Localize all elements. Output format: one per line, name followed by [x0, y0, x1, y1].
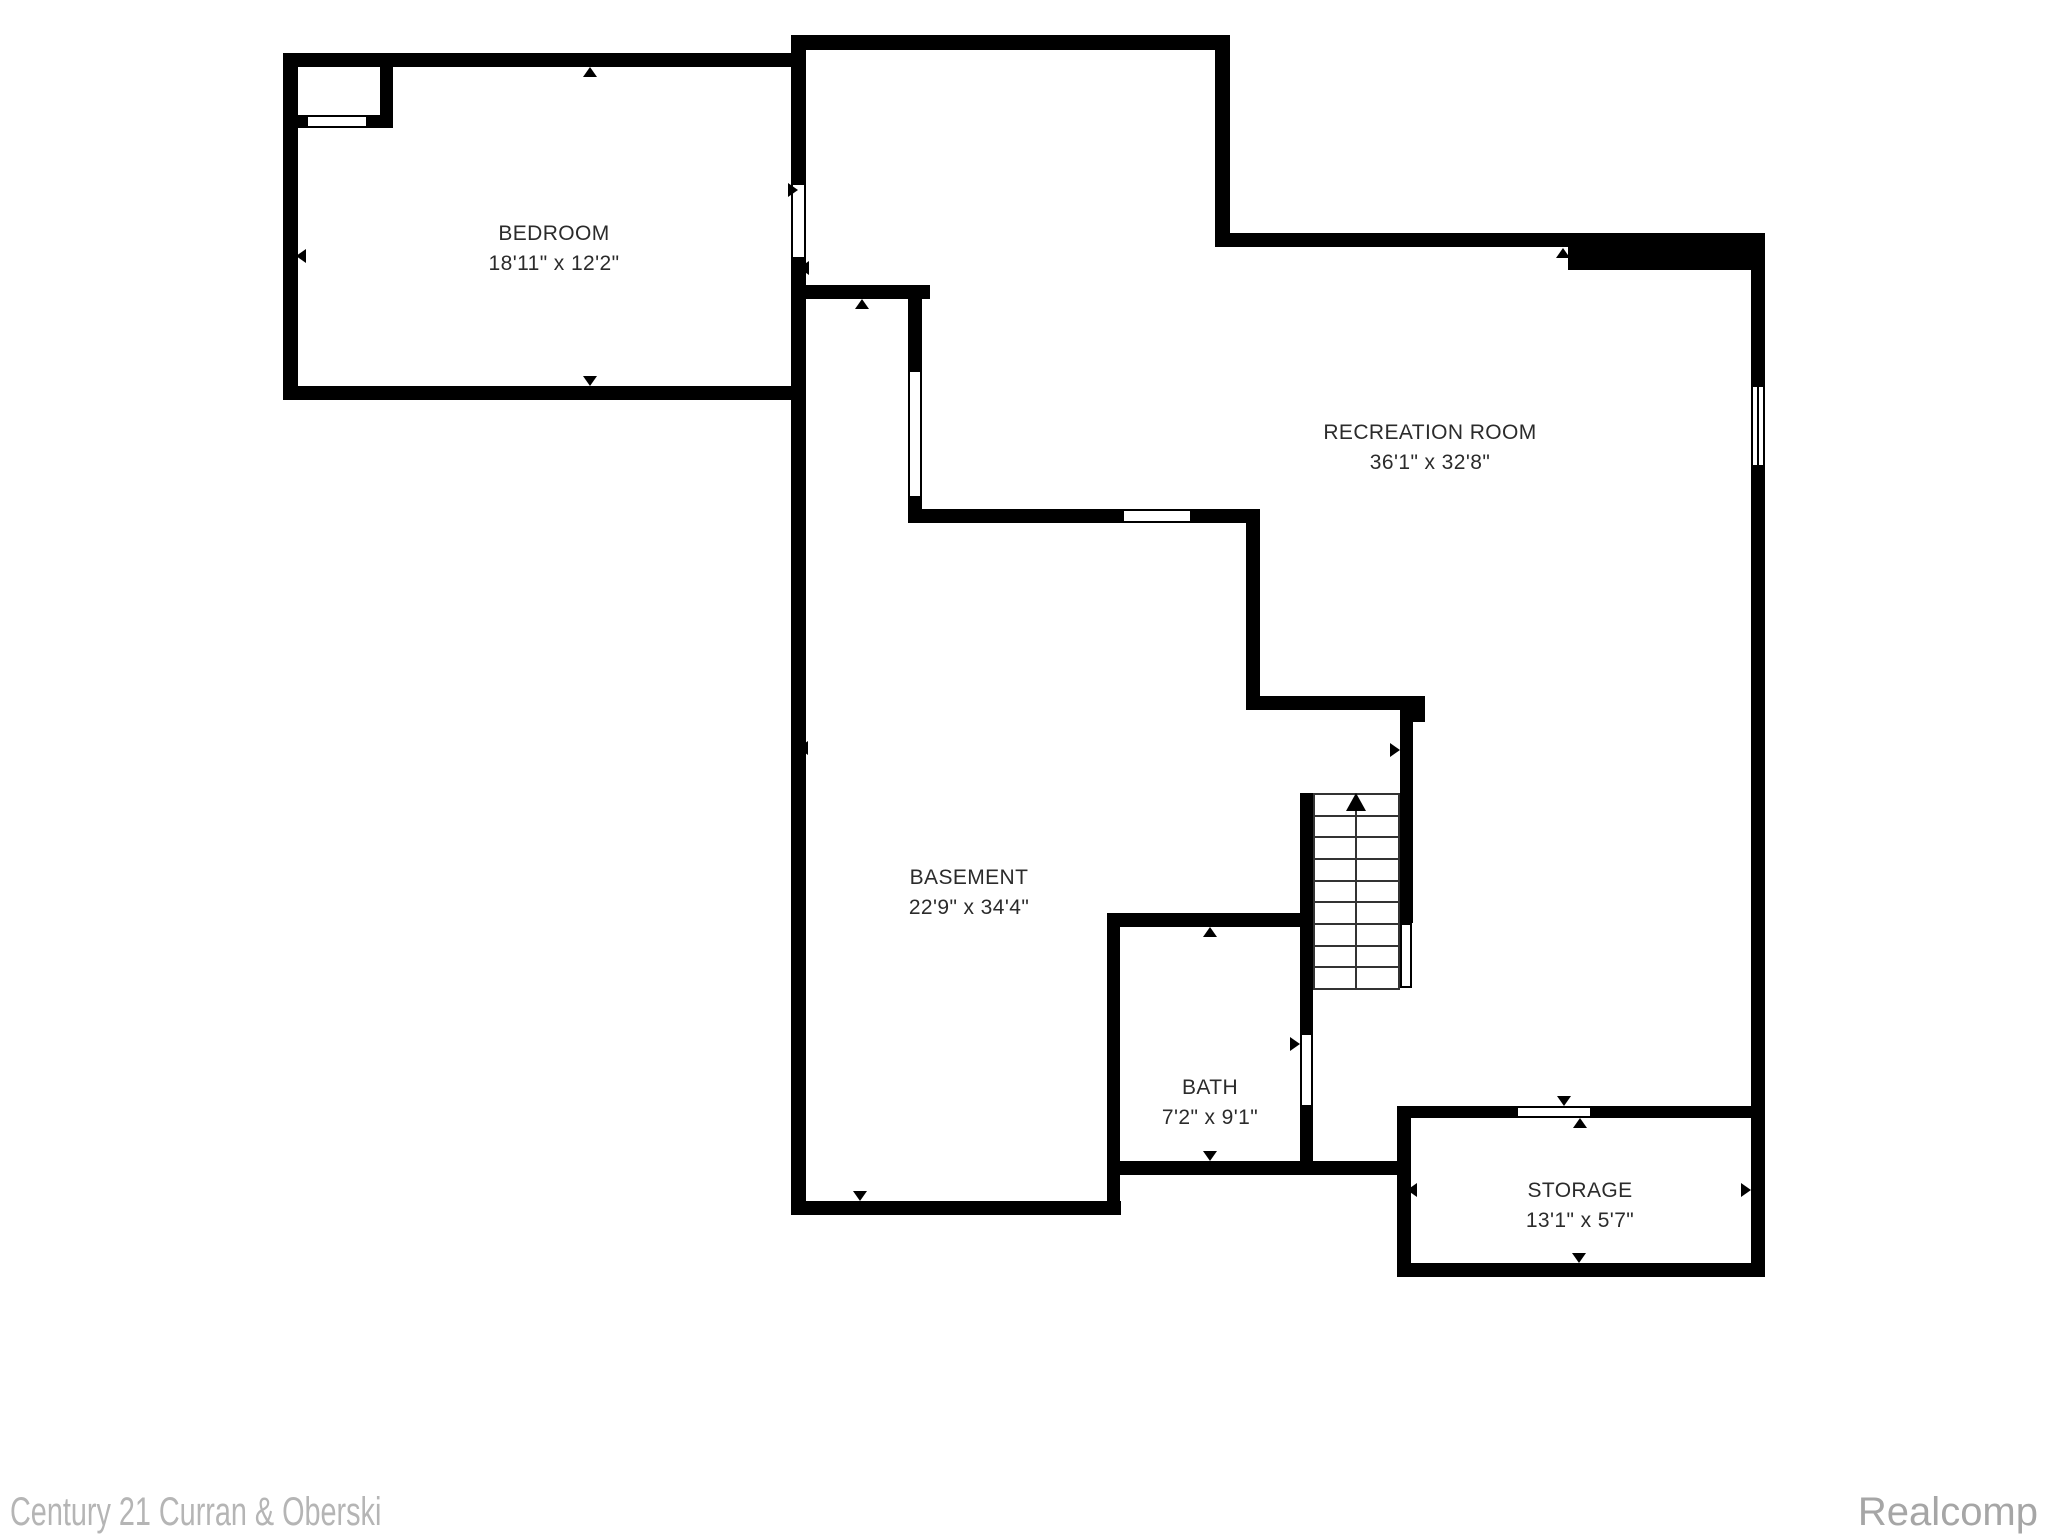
wall: [1107, 1161, 1397, 1175]
floorplan-canvas: BEDROOM18'11" x 12'2"RECREATION ROOM36'1…: [0, 0, 2048, 1536]
stair-railing: [1400, 923, 1412, 988]
room-label-bedroom: BEDROOM18'11" x 12'2": [489, 219, 620, 279]
stair-edge: [1313, 793, 1315, 988]
stair-up-arrow-icon: [1346, 793, 1366, 811]
room-label-recreation-room: RECREATION ROOM36'1" x 32'8": [1323, 418, 1536, 478]
wall: [1246, 696, 1410, 710]
wall: [791, 400, 806, 1215]
room-dimensions-bath: 7'2" x 9'1": [1162, 1103, 1258, 1133]
recreation-window-small: [1122, 509, 1192, 523]
dimension-marker-icon: [1203, 927, 1217, 937]
window-glass-line: [1757, 387, 1759, 465]
room-label-basement: BASEMENT22'9" x 34'4": [909, 863, 1029, 923]
dimension-marker-icon: [1110, 1036, 1120, 1050]
wall: [806, 285, 930, 299]
storage-door-opening: [1518, 1106, 1590, 1118]
dimension-marker-icon: [798, 741, 808, 755]
room-dimensions-storage: 13'1" x 5'7": [1526, 1206, 1634, 1236]
dimension-marker-icon: [583, 67, 597, 77]
wall: [1397, 1106, 1518, 1118]
room-name-recreation-room: RECREATION ROOM: [1323, 418, 1536, 448]
wall: [908, 509, 1122, 523]
dimension-marker-icon: [1290, 1037, 1300, 1051]
dimension-marker-icon: [788, 183, 798, 197]
room-name-bedroom: BEDROOM: [489, 219, 620, 249]
dimension-marker-icon: [1741, 1183, 1751, 1197]
wall: [1400, 722, 1413, 923]
wall: [791, 257, 806, 400]
dimension-marker-icon: [1203, 1151, 1217, 1161]
room-name-basement: BASEMENT: [909, 863, 1029, 893]
dimension-marker-icon: [853, 1191, 867, 1201]
wall: [908, 299, 922, 370]
stair-edge: [1398, 793, 1400, 988]
room-dimensions-recreation-room: 36'1" x 32'8": [1323, 448, 1536, 478]
closet-door-opening: [306, 115, 368, 128]
wall: [791, 35, 1230, 50]
wall: [283, 53, 806, 67]
dimension-marker-icon: [1572, 1253, 1586, 1263]
wall: [1568, 233, 1765, 270]
room-name-storage: STORAGE: [1526, 1176, 1634, 1206]
dimension-marker-icon: [1407, 1183, 1417, 1197]
stair-center-line: [1355, 807, 1357, 988]
room-dimensions-bedroom: 18'11" x 12'2": [489, 249, 620, 279]
wall: [283, 53, 298, 400]
wall: [1107, 913, 1313, 927]
room-label-storage: STORAGE13'1" x 5'7": [1526, 1176, 1634, 1236]
watermark-realcomp: Realcomp: [1858, 1490, 2038, 1535]
dimension-marker-icon: [1556, 248, 1570, 258]
room-name-bath: BATH: [1162, 1073, 1258, 1103]
wall: [283, 386, 806, 400]
dimension-marker-icon: [1573, 1118, 1587, 1128]
room-dimensions-basement: 22'9" x 34'4": [909, 893, 1029, 923]
floorplan-page: BEDROOM18'11" x 12'2"RECREATION ROOM36'1…: [0, 0, 2048, 1536]
wall: [1397, 1263, 1765, 1277]
wall: [1215, 233, 1568, 247]
wall: [368, 115, 393, 128]
wall: [791, 35, 806, 185]
dimension-marker-icon: [583, 376, 597, 386]
wall: [791, 1201, 1121, 1215]
wall: [1400, 696, 1425, 722]
wall: [1215, 50, 1230, 247]
dimension-marker-icon: [1557, 1096, 1571, 1106]
dimension-marker-icon: [296, 249, 306, 263]
wall: [298, 115, 306, 128]
basement-window: [908, 370, 922, 498]
room-label-bath: BATH7'2" x 9'1": [1162, 1073, 1258, 1133]
dimension-marker-icon: [799, 261, 809, 275]
wall: [1590, 1106, 1751, 1118]
dimension-marker-icon: [1390, 743, 1400, 757]
wall: [1300, 1105, 1313, 1175]
bath-door-opening: [1300, 1035, 1313, 1105]
watermark-century21: Century 21 Curran & Oberski: [10, 1490, 381, 1535]
stair-tread: [1313, 988, 1400, 990]
dimension-marker-icon: [855, 299, 869, 309]
wall: [1246, 509, 1260, 710]
